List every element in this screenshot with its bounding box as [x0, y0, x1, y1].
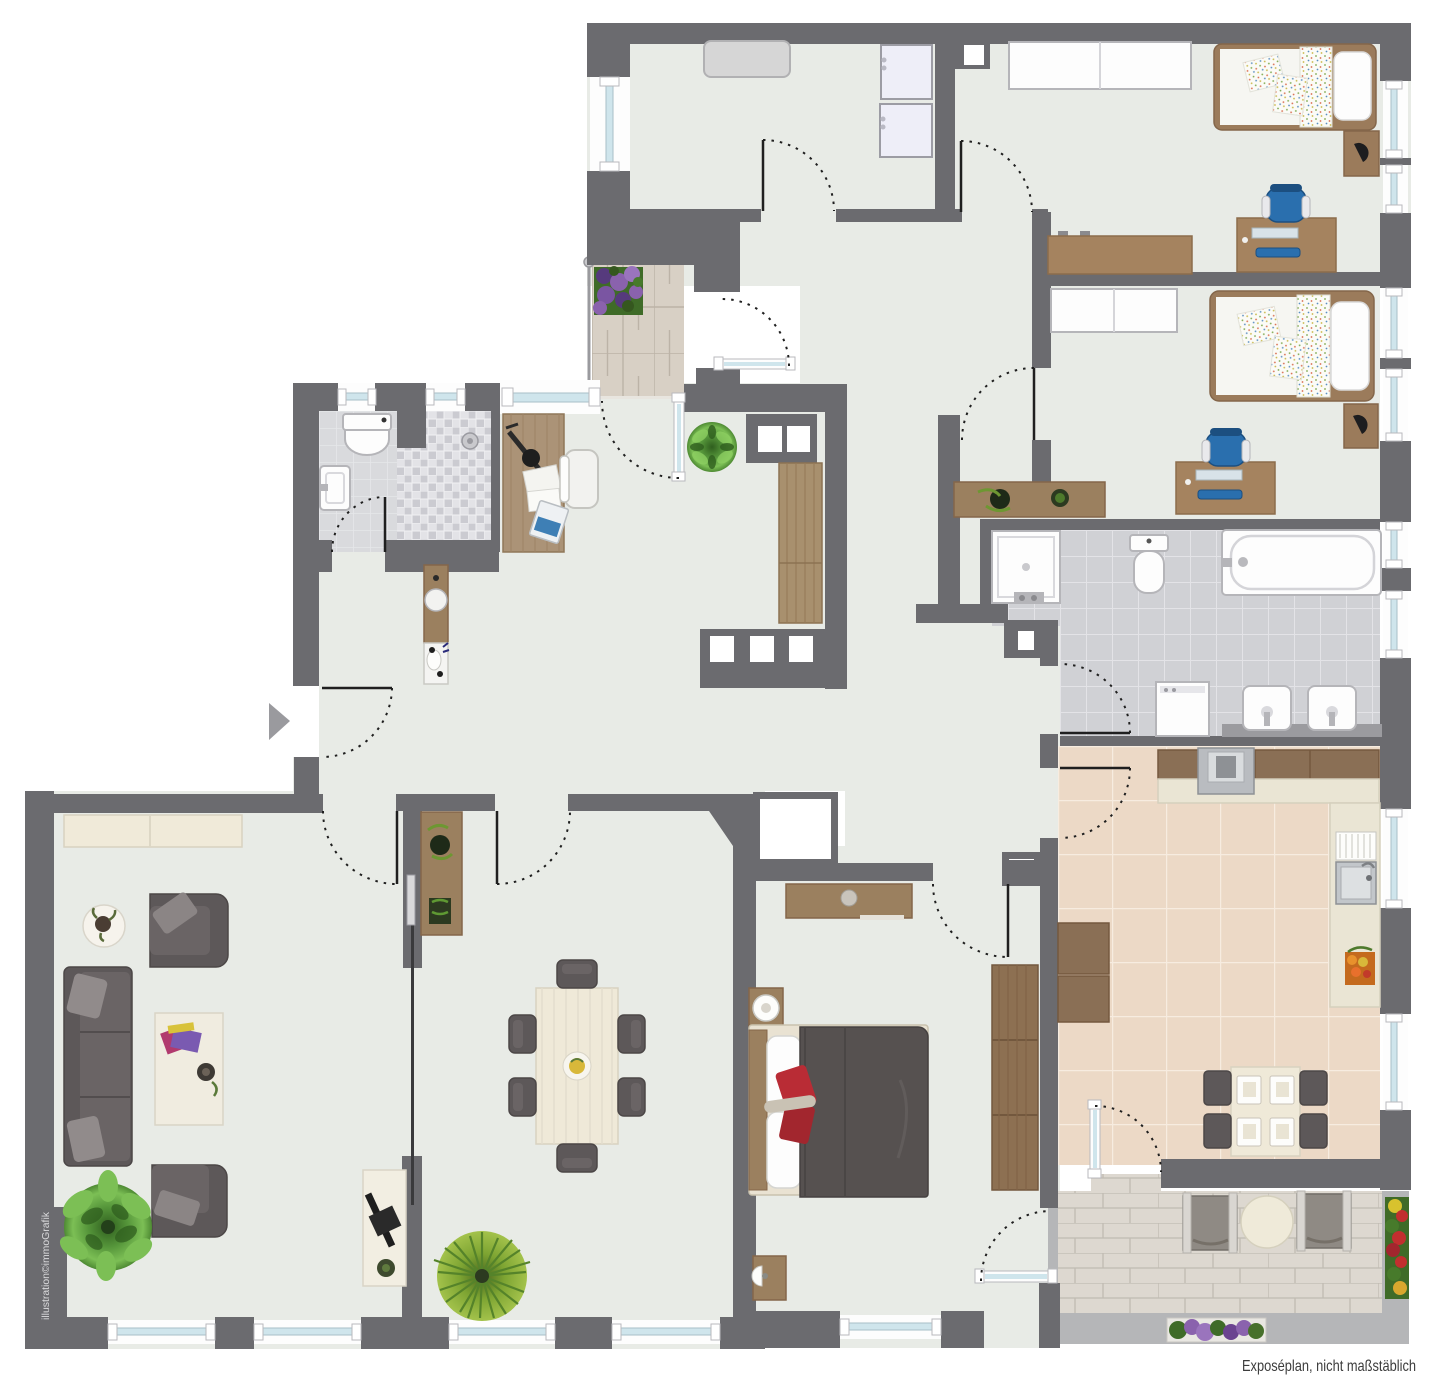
svg-text:illustration©immoGrafik: illustration©immoGrafik: [40, 1211, 52, 1320]
svg-text:Exposéplan, nicht maßstäblich: Exposéplan, nicht maßstäblich: [1242, 1358, 1416, 1375]
